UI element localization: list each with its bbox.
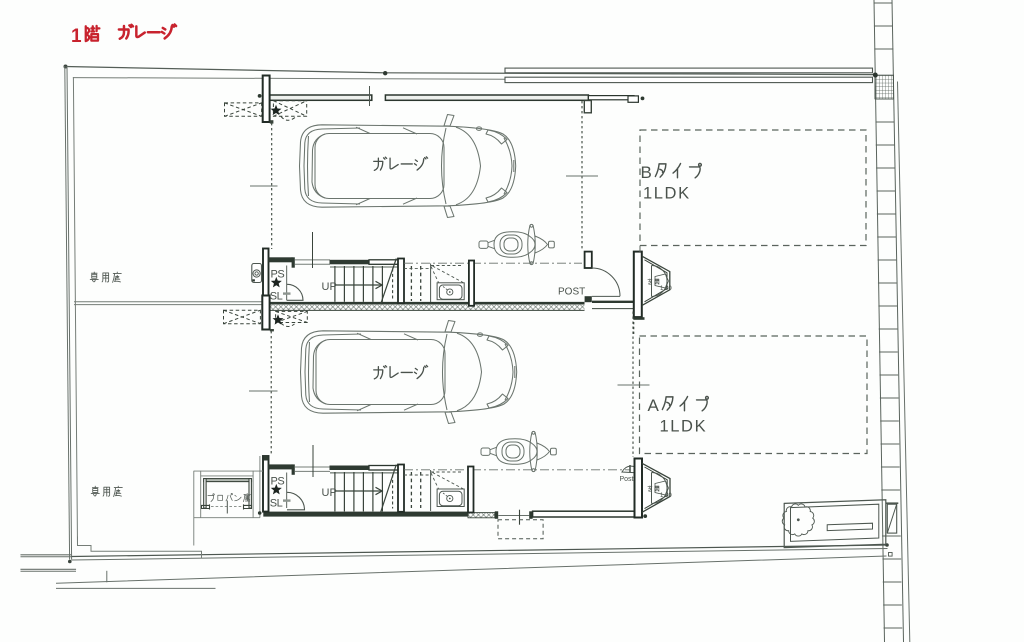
- svg-text:SL: SL: [270, 291, 283, 303]
- svg-text:1LDK: 1LDK: [643, 185, 691, 203]
- svg-text:1: 1: [71, 26, 82, 47]
- svg-text:PS: PS: [271, 269, 285, 281]
- svg-text:PS: PS: [271, 476, 285, 488]
- svg-text:A: A: [648, 396, 660, 415]
- svg-text:1.80: 1.80: [660, 286, 672, 292]
- svg-text:UP: UP: [322, 487, 337, 499]
- svg-text:1.80: 1.80: [660, 493, 672, 499]
- svg-text:UP: UP: [322, 281, 337, 293]
- svg-text:POST: POST: [558, 287, 585, 298]
- svg-text:B: B: [641, 163, 652, 182]
- svg-text:SL: SL: [270, 498, 283, 510]
- svg-text:Post: Post: [620, 476, 634, 483]
- svg-text:1LDK: 1LDK: [660, 418, 708, 436]
